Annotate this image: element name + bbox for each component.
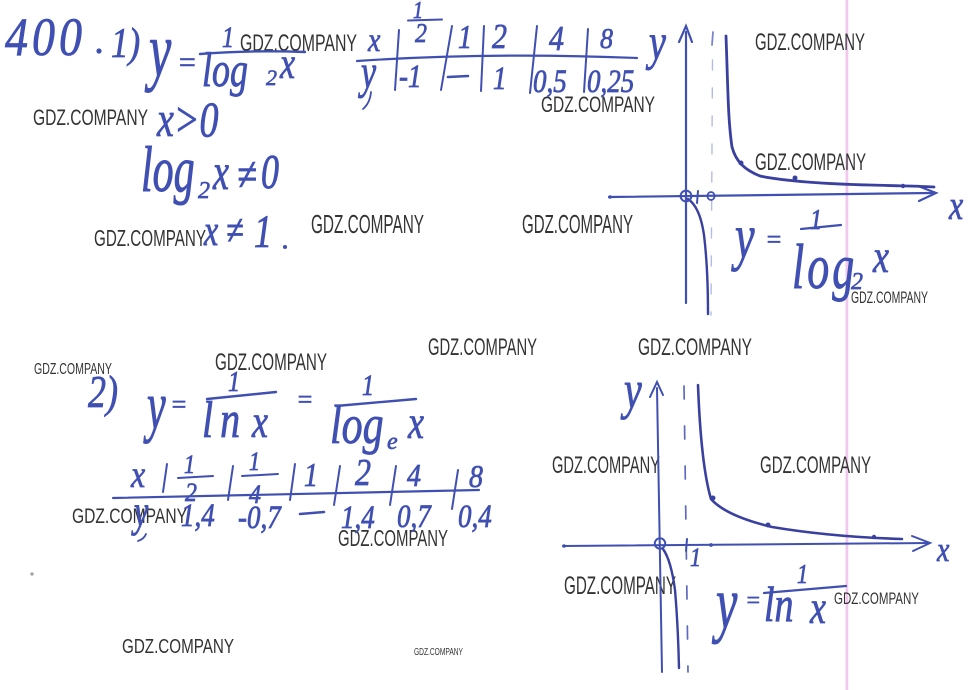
svg-text:GDZ.COMPANY: GDZ.COMPANY (755, 149, 866, 176)
svg-text:=: = (765, 225, 783, 254)
svg-text:1,4: 1,4 (181, 498, 215, 534)
svg-text:0,5: 0,5 (533, 64, 567, 100)
svg-text:GDZ.COMPANY: GDZ.COMPANY (311, 209, 424, 239)
svg-text:2: 2 (355, 451, 371, 493)
svg-text:x: x (251, 397, 268, 449)
svg-text:8: 8 (600, 23, 613, 54)
svg-text:x: x (809, 583, 826, 635)
svg-text:1: 1 (690, 543, 701, 572)
svg-text:y: y (131, 487, 149, 536)
svg-text:GDZ.COMPANY: GDZ.COMPANY (94, 225, 206, 251)
svg-text:0,7: 0,7 (397, 499, 432, 535)
svg-text:1: 1 (493, 61, 506, 97)
svg-text:y: y (646, 14, 667, 71)
svg-text:x: x (212, 145, 229, 200)
svg-text:1: 1 (797, 560, 808, 590)
svg-text:GDZ.COMPANY: GDZ.COMPANY (428, 334, 537, 361)
svg-text:ln: ln (764, 577, 794, 632)
svg-text:GDZ.COMPANY: GDZ.COMPANY (755, 29, 865, 56)
svg-text:GDZ.COMPANY: GDZ.COMPANY (760, 452, 871, 479)
svg-text:=: = (296, 385, 314, 414)
svg-text:4: 4 (407, 457, 421, 493)
svg-text:y: y (144, 8, 171, 94)
svg-text:1: 1 (304, 456, 318, 494)
svg-text:y: y (731, 201, 755, 272)
svg-text:GDZ.COMPANY: GDZ.COMPANY (552, 452, 660, 479)
svg-text:2: 2 (492, 17, 507, 55)
svg-text:=: = (745, 588, 761, 614)
svg-text:x: x (407, 398, 424, 450)
svg-text:x: x (948, 183, 964, 229)
svg-text:x: x (279, 39, 295, 88)
svg-text:ln: ln (202, 392, 247, 449)
svg-text:GDZ.COMPANY: GDZ.COMPANY (122, 636, 234, 658)
svg-text:2): 2) (88, 367, 118, 417)
svg-text:GDZ.COMPANY: GDZ.COMPANY (834, 589, 919, 608)
svg-text:1): 1) (111, 21, 140, 67)
svg-text:y: y (143, 369, 166, 445)
svg-text:log: log (202, 44, 248, 97)
svg-text:4: 4 (549, 19, 564, 57)
svg-text:y: y (621, 361, 643, 420)
svg-text:=: = (170, 390, 188, 419)
svg-text:0: 0 (261, 146, 279, 199)
svg-text:x: x (872, 232, 889, 284)
svg-text:0,4: 0,4 (458, 499, 492, 535)
svg-text:2: 2 (415, 17, 427, 48)
svg-text:≠: ≠ (237, 150, 257, 202)
svg-text:log: log (330, 395, 384, 456)
svg-text:2: 2 (198, 178, 210, 204)
svg-text:1,4: 1,4 (341, 500, 375, 536)
svg-text:log: log (792, 231, 857, 302)
svg-text:x: x (203, 207, 218, 255)
svg-text:1: 1 (458, 18, 472, 56)
svg-text:≠: ≠ (226, 208, 244, 254)
svg-text:-0,7: -0,7 (238, 500, 282, 536)
svg-text:-1: -1 (399, 59, 421, 95)
svg-text:1: 1 (249, 447, 260, 476)
svg-text:GDZ.COMPANY: GDZ.COMPANY (522, 209, 633, 239)
svg-text:y: y (711, 561, 737, 644)
svg-text:=: = (177, 46, 197, 79)
svg-text:GDZ.COMPANY: GDZ.COMPANY (414, 647, 463, 658)
svg-text:2: 2 (851, 269, 863, 295)
svg-text:GDZ.COMPANY: GDZ.COMPANY (33, 105, 148, 130)
svg-text:y: y (358, 45, 377, 98)
svg-text:1: 1 (184, 450, 195, 479)
svg-text:0,25: 0,25 (587, 64, 634, 100)
svg-text:2: 2 (266, 65, 277, 90)
svg-text:x: x (936, 530, 949, 569)
svg-text:1: 1 (254, 207, 272, 259)
svg-text:GDZ.COMPANY: GDZ.COMPANY (638, 334, 752, 361)
svg-text:GDZ.COMPANY: GDZ.COMPANY (72, 505, 187, 528)
svg-text:400: 400 (5, 6, 86, 66)
svg-text:e: e (387, 429, 398, 455)
svg-text:log: log (141, 133, 195, 205)
